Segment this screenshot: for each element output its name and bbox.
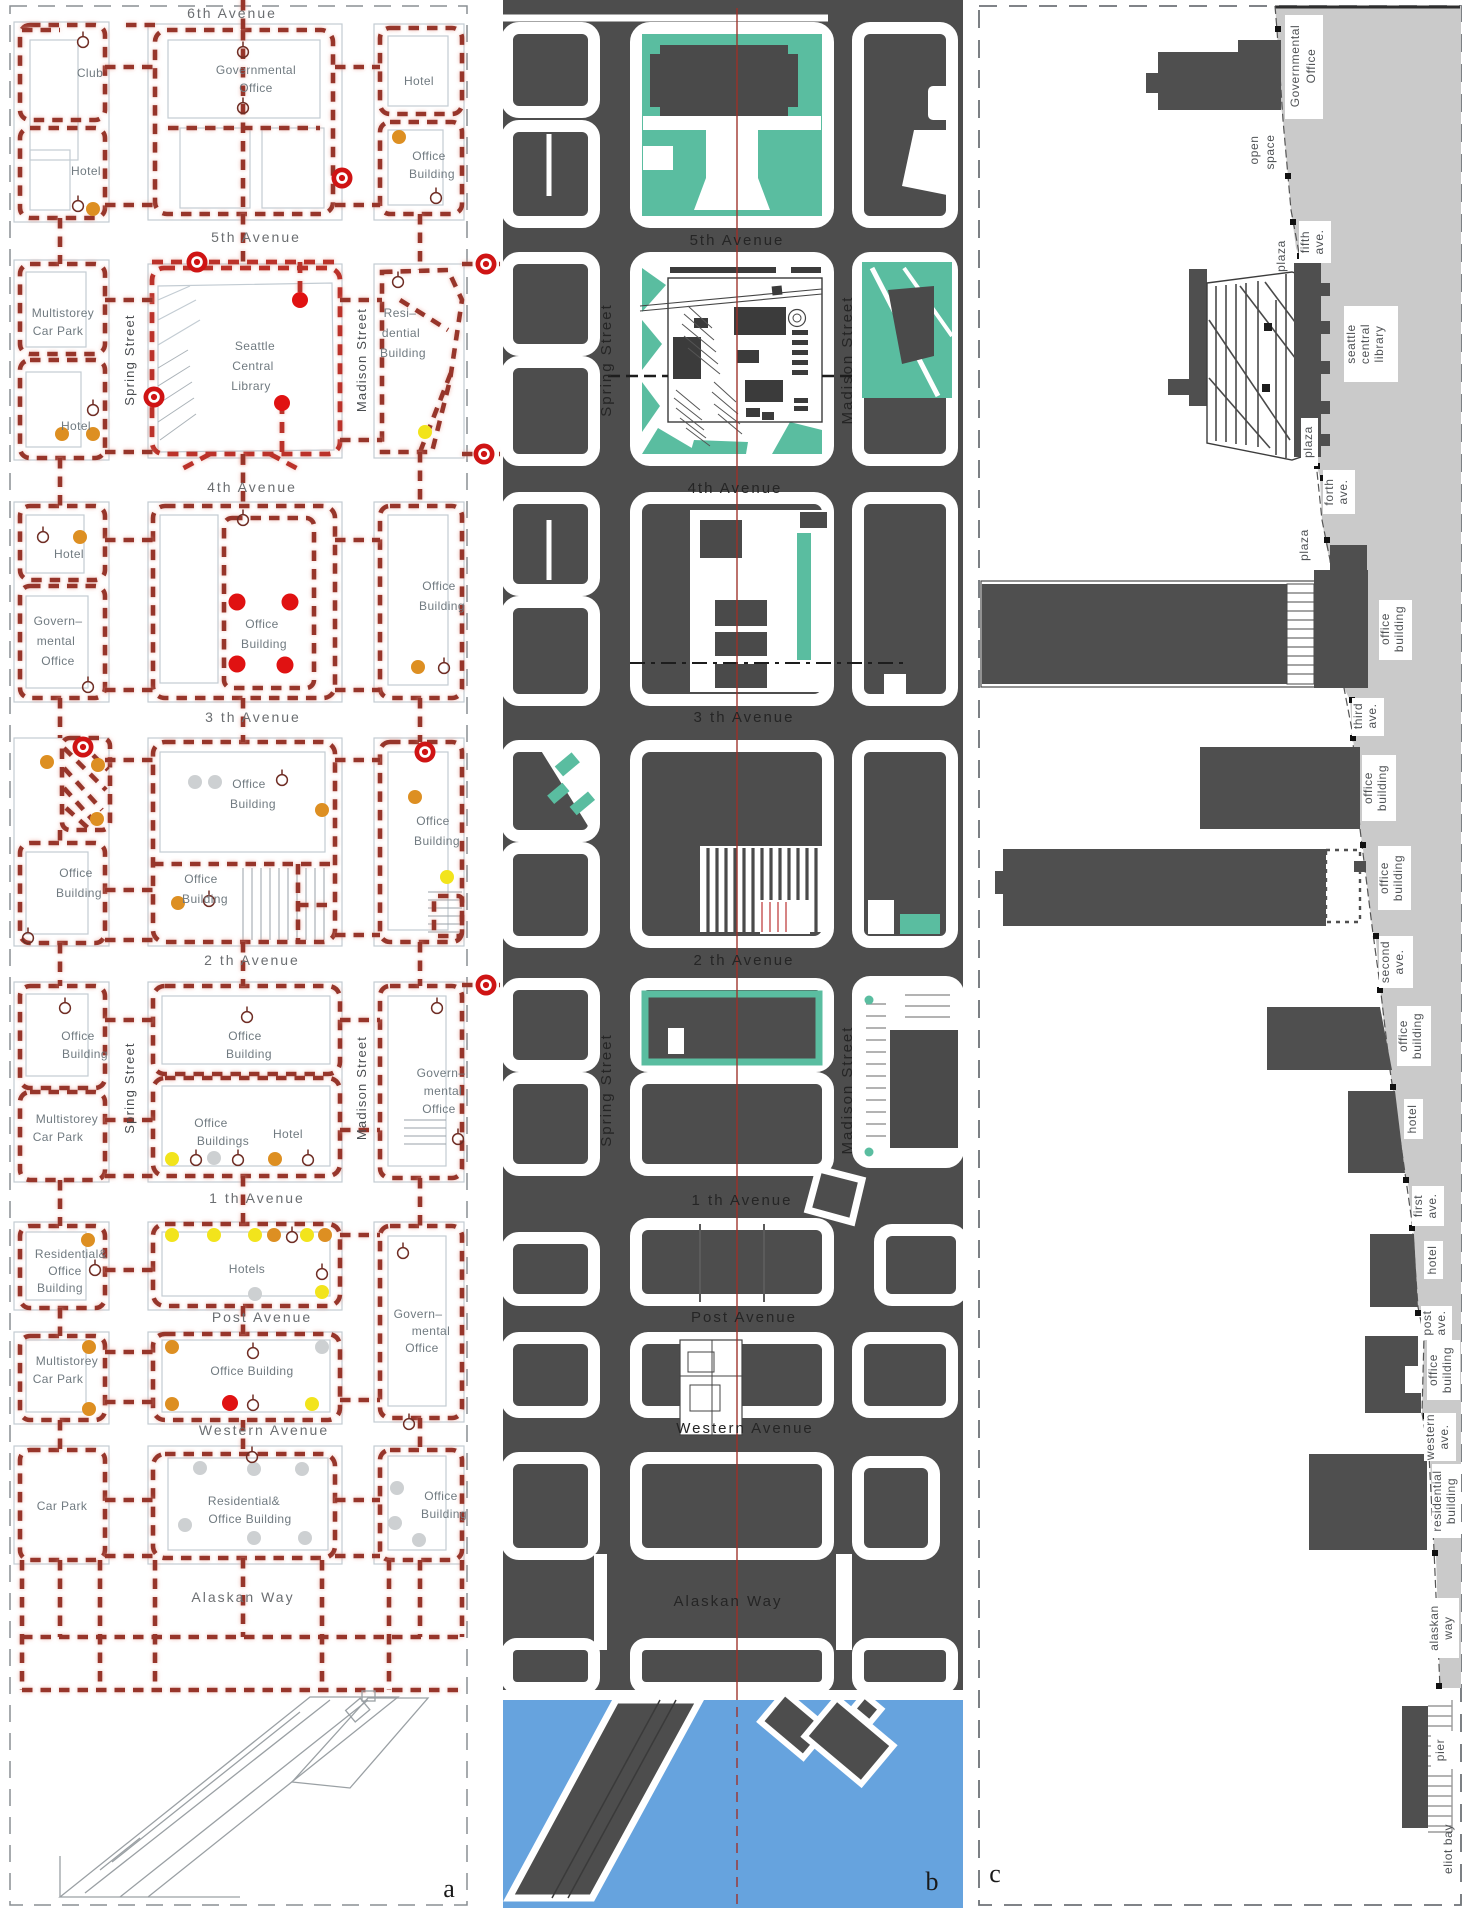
svg-text:Madison Street: Madison Street <box>354 1036 369 1140</box>
svg-text:second: second <box>1378 941 1392 983</box>
svg-text:Building: Building <box>56 886 102 900</box>
svg-text:Hotel: Hotel <box>61 419 91 433</box>
svg-text:Office: Office <box>194 1116 228 1130</box>
svg-text:alaskan: alaskan <box>1427 1605 1441 1651</box>
svg-text:open: open <box>1247 135 1261 164</box>
svg-text:Office: Office <box>424 1489 458 1503</box>
svg-text:5th Avenue: 5th Avenue <box>690 232 785 249</box>
svg-text:Club: Club <box>77 66 103 80</box>
svg-text:c: c <box>989 1859 1001 1888</box>
svg-text:western: western <box>1423 1414 1437 1461</box>
svg-text:hotel: hotel <box>1405 1104 1419 1133</box>
svg-text:Post Avenue: Post Avenue <box>212 1309 312 1325</box>
svg-text:forth: forth <box>1322 478 1336 505</box>
svg-text:Govern–: Govern– <box>417 1066 466 1080</box>
svg-text:Govern–: Govern– <box>394 1307 443 1321</box>
svg-text:ave.: ave. <box>1392 949 1406 974</box>
svg-text:building: building <box>1392 606 1406 652</box>
svg-text:first: first <box>1411 1195 1425 1217</box>
svg-text:Governmental: Governmental <box>1288 25 1302 108</box>
svg-text:4th Avenue: 4th Avenue <box>688 480 783 497</box>
svg-text:ave.: ave. <box>1312 229 1326 254</box>
svg-text:Building: Building <box>421 1507 467 1521</box>
svg-text:Car Park: Car Park <box>37 1499 88 1513</box>
svg-text:office: office <box>1361 772 1375 804</box>
svg-text:Seattle: Seattle <box>235 339 275 353</box>
svg-text:Office: Office <box>239 81 273 95</box>
svg-text:Post Avenue: Post Avenue <box>691 1309 797 1326</box>
svg-text:Spring Street: Spring Street <box>122 314 137 405</box>
svg-text:Spring Street: Spring Street <box>598 1033 615 1147</box>
svg-text:Building: Building <box>409 167 455 181</box>
svg-text:pier: pier <box>1433 1739 1447 1761</box>
svg-text:ave.: ave. <box>1336 479 1350 504</box>
svg-text:Multistorey: Multistorey <box>32 306 94 320</box>
svg-text:b: b <box>926 1867 939 1896</box>
svg-text:Multistorey: Multistorey <box>36 1354 98 1368</box>
svg-text:Office: Office <box>422 579 456 593</box>
svg-text:3 th Avenue: 3 th Avenue <box>694 709 795 726</box>
svg-text:post: post <box>1420 1310 1434 1335</box>
svg-text:Office Building: Office Building <box>210 1364 293 1378</box>
svg-text:Multistorey: Multistorey <box>36 1112 98 1126</box>
svg-text:Building: Building <box>230 797 276 811</box>
svg-text:library: library <box>1372 326 1386 363</box>
svg-text:ave.: ave. <box>1434 1310 1448 1335</box>
svg-text:dential: dential <box>382 326 420 340</box>
svg-text:Residential&: Residential& <box>35 1247 107 1261</box>
svg-text:third: third <box>1351 703 1365 729</box>
svg-text:Central: Central <box>232 359 273 373</box>
svg-text:residential: residential <box>1430 1470 1444 1531</box>
svg-text:Madison Street: Madison Street <box>839 296 856 425</box>
svg-text:hotel: hotel <box>1425 1245 1439 1274</box>
svg-text:Office: Office <box>416 814 450 828</box>
svg-text:Hotel: Hotel <box>71 164 101 178</box>
svg-text:central: central <box>1358 324 1372 364</box>
svg-text:Building: Building <box>419 599 465 613</box>
svg-text:plaza: plaza <box>1274 240 1288 272</box>
svg-text:Building: Building <box>241 637 287 651</box>
svg-text:Resi–: Resi– <box>384 306 417 320</box>
svg-text:Western Avenue: Western Avenue <box>199 1422 329 1438</box>
svg-text:fifth: fifth <box>1298 231 1312 253</box>
svg-text:Spring Street: Spring Street <box>598 303 615 417</box>
svg-text:2 th Avenue: 2 th Avenue <box>204 952 300 968</box>
svg-text:Office: Office <box>422 1102 456 1116</box>
svg-text:Building: Building <box>226 1047 272 1061</box>
svg-text:mental: mental <box>37 634 75 648</box>
svg-text:ave.: ave. <box>1425 1193 1439 1218</box>
svg-text:eliot bay: eliot bay <box>1441 1824 1455 1874</box>
svg-text:a: a <box>443 1874 455 1903</box>
svg-text:Office: Office <box>48 1264 82 1278</box>
svg-text:building: building <box>1410 1013 1424 1059</box>
svg-text:mental: mental <box>424 1084 462 1098</box>
svg-text:Office: Office <box>1304 49 1318 84</box>
svg-text:Car Park: Car Park <box>33 1130 84 1144</box>
svg-text:Hotel: Hotel <box>54 547 84 561</box>
svg-text:Office: Office <box>41 654 75 668</box>
svg-text:Building: Building <box>62 1047 108 1061</box>
svg-text:Building: Building <box>37 1281 83 1295</box>
svg-text:Office: Office <box>184 872 218 886</box>
svg-text:Hotel: Hotel <box>404 74 434 88</box>
svg-text:Buildings: Buildings <box>197 1134 249 1148</box>
svg-text:building: building <box>1444 1478 1458 1524</box>
svg-text:2 th Avenue: 2 th Avenue <box>694 952 795 969</box>
svg-text:building: building <box>1375 765 1389 811</box>
svg-text:Office: Office <box>228 1029 262 1043</box>
svg-text:Hotels: Hotels <box>229 1262 265 1276</box>
svg-text:Hotel: Hotel <box>273 1127 303 1141</box>
svg-text:Car Park: Car Park <box>33 324 84 338</box>
svg-text:mental: mental <box>412 1324 450 1338</box>
svg-text:Library: Library <box>231 379 270 393</box>
svg-text:Western Avenue: Western Avenue <box>676 1420 814 1437</box>
svg-text:Madison Street: Madison Street <box>839 1026 856 1155</box>
svg-text:1 th Avenue: 1 th Avenue <box>209 1190 305 1206</box>
svg-text:Office Building: Office Building <box>208 1512 291 1526</box>
svg-text:Car Park: Car Park <box>33 1372 84 1386</box>
svg-text:Office: Office <box>61 1029 95 1043</box>
svg-text:Alaskan Way: Alaskan Way <box>191 1589 294 1605</box>
svg-text:ave.: ave. <box>1365 703 1379 728</box>
svg-text:Office: Office <box>232 777 266 791</box>
svg-text:Governmental: Governmental <box>216 63 296 77</box>
svg-text:4th Avenue: 4th Avenue <box>207 479 297 495</box>
svg-text:Office: Office <box>412 149 446 163</box>
svg-text:plaza: plaza <box>1297 529 1311 561</box>
svg-text:way: way <box>1441 1616 1455 1640</box>
svg-text:Building: Building <box>414 834 460 848</box>
svg-text:Govern–: Govern– <box>34 614 83 628</box>
svg-text:seattle: seattle <box>1344 324 1358 364</box>
svg-text:Residential&: Residential& <box>208 1494 280 1508</box>
svg-text:Building: Building <box>380 346 426 360</box>
svg-text:Building: Building <box>182 892 228 906</box>
svg-text:building: building <box>1440 1347 1454 1393</box>
svg-text:ave.: ave. <box>1437 1424 1451 1449</box>
svg-text:5th Avenue: 5th Avenue <box>211 229 301 245</box>
svg-text:building: building <box>1391 855 1405 901</box>
svg-text:office: office <box>1426 1354 1440 1386</box>
svg-text:3 th Avenue: 3 th Avenue <box>205 709 301 725</box>
svg-text:Spring Street: Spring Street <box>122 1042 137 1133</box>
svg-text:Office: Office <box>245 617 279 631</box>
svg-text:Office: Office <box>405 1341 439 1355</box>
svg-text:plaza: plaza <box>1301 426 1315 458</box>
svg-text:6th Avenue: 6th Avenue <box>187 5 277 21</box>
svg-text:space: space <box>1263 134 1277 169</box>
svg-text:office: office <box>1377 862 1391 894</box>
svg-text:office: office <box>1378 613 1392 645</box>
svg-text:Madison Street: Madison Street <box>354 308 369 412</box>
svg-text:1 th Avenue: 1 th Avenue <box>692 1192 793 1209</box>
svg-text:Office: Office <box>59 866 93 880</box>
svg-text:office: office <box>1396 1020 1410 1052</box>
svg-text:Alaskan Way: Alaskan Way <box>674 1593 783 1610</box>
